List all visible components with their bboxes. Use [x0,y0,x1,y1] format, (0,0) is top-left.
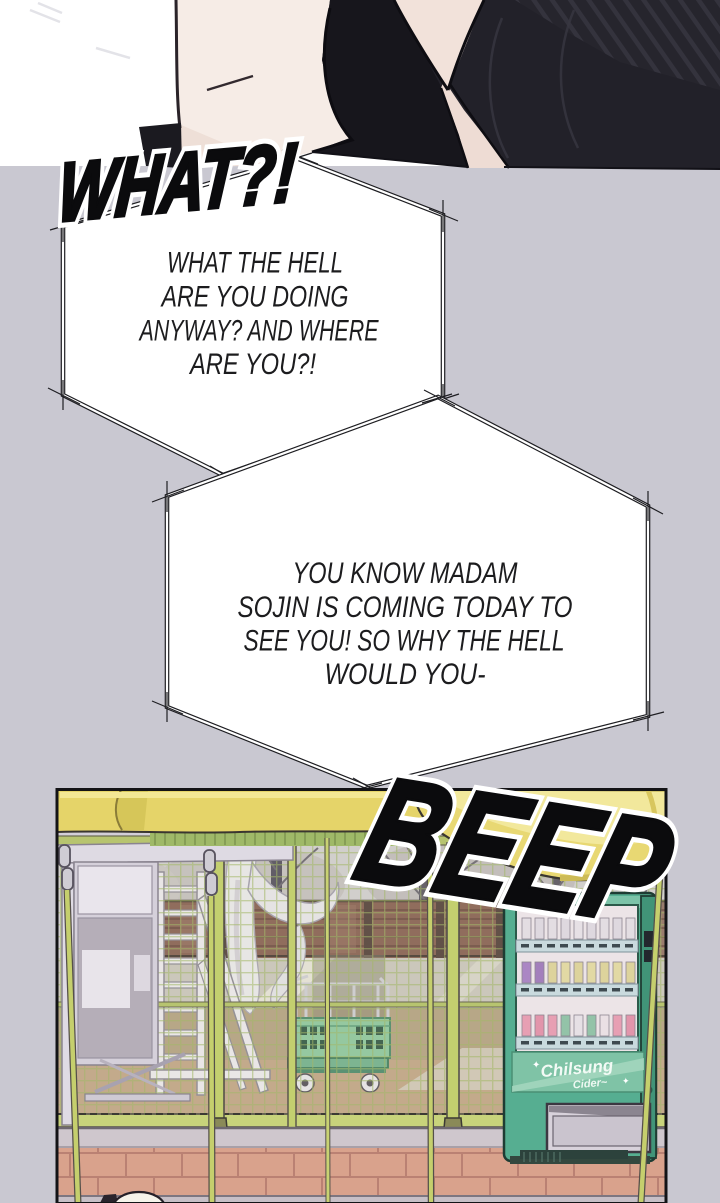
svg-text:✦: ✦ [622,1076,630,1086]
svg-text:WHAT THE HELL: WHAT THE HELL [167,247,343,280]
svg-text:ANYWAY? AND WHERE: ANYWAY? AND WHERE [138,315,379,348]
svg-text:✦: ✦ [532,1060,540,1071]
svg-text:WOULD YOU-: WOULD YOU- [325,658,486,691]
svg-text:SEE YOU! SO WHY THE HELL: SEE YOU! SO WHY THE HELL [244,625,565,658]
svg-text:SOJIN IS COMING TODAY TO: SOJIN IS COMING TODAY TO [238,591,573,624]
svg-text:YOU KNOW MADAM: YOU KNOW MADAM [293,557,518,590]
svg-text:ARE YOU?!: ARE YOU?! [188,348,316,381]
svg-text:ARE YOU DOING: ARE YOU DOING [160,281,349,314]
